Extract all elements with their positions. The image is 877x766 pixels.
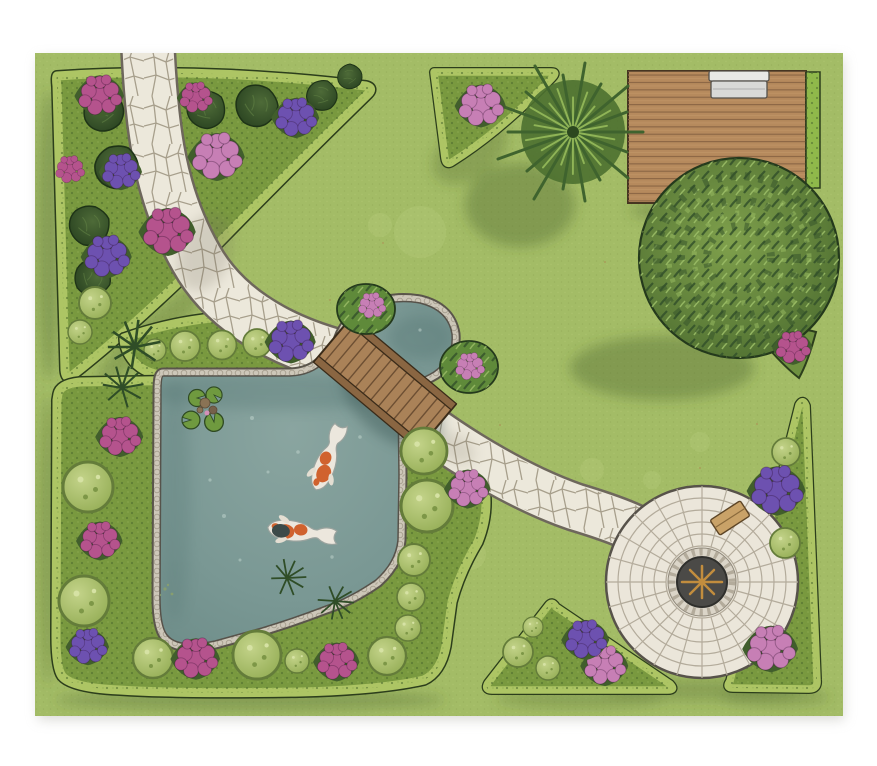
deck-bench-backrest xyxy=(709,71,769,81)
garden-area xyxy=(35,48,843,716)
deck-bench xyxy=(709,71,769,98)
large-round-shrub xyxy=(639,158,839,358)
garden-plan-page xyxy=(0,0,877,766)
garden-plan-illustration xyxy=(0,0,877,766)
